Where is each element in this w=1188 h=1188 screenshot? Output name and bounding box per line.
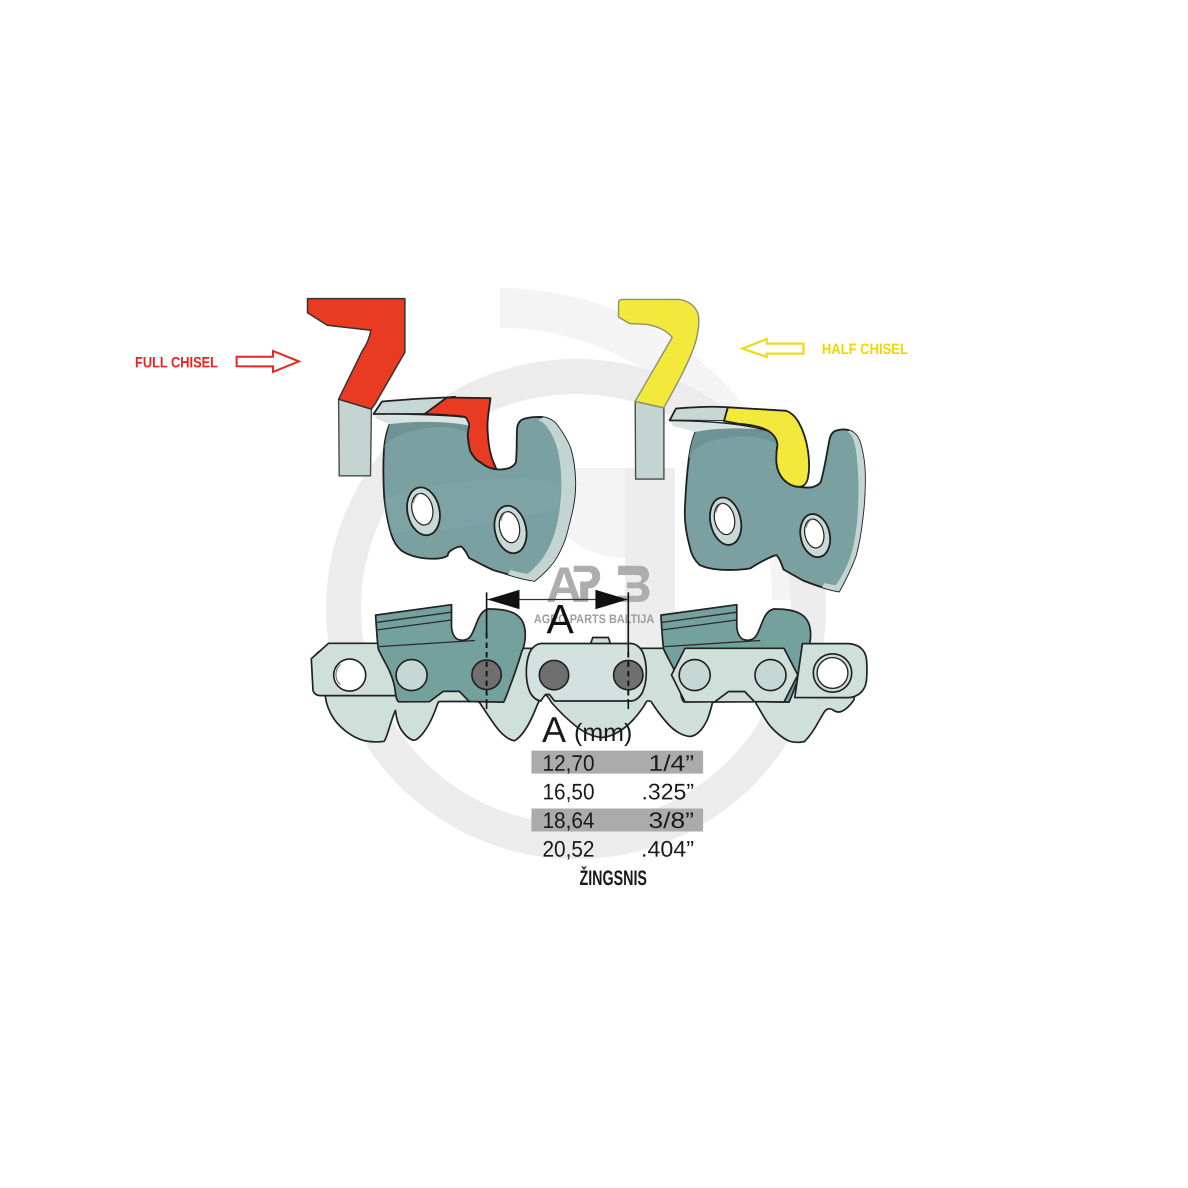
svg-text:16,50: 16,50 (542, 779, 594, 804)
svg-text:FULL CHISEL: FULL CHISEL (135, 354, 218, 371)
svg-text:1/4”: 1/4” (649, 751, 695, 776)
svg-text:18,64: 18,64 (542, 808, 594, 833)
svg-text:A: A (542, 709, 566, 750)
svg-text:.325”: .325” (641, 779, 694, 804)
svg-text:(mm): (mm) (574, 719, 632, 747)
svg-text:20,52: 20,52 (542, 837, 594, 862)
svg-text:ŽINGSNIS: ŽINGSNIS (579, 866, 647, 890)
svg-text:12,70: 12,70 (543, 751, 595, 776)
svg-text:A: A (546, 596, 574, 642)
svg-text:3/8”: 3/8” (648, 808, 694, 833)
svg-text:HALF CHISEL: HALF CHISEL (822, 341, 908, 358)
svg-text:.404”: .404” (641, 837, 694, 862)
